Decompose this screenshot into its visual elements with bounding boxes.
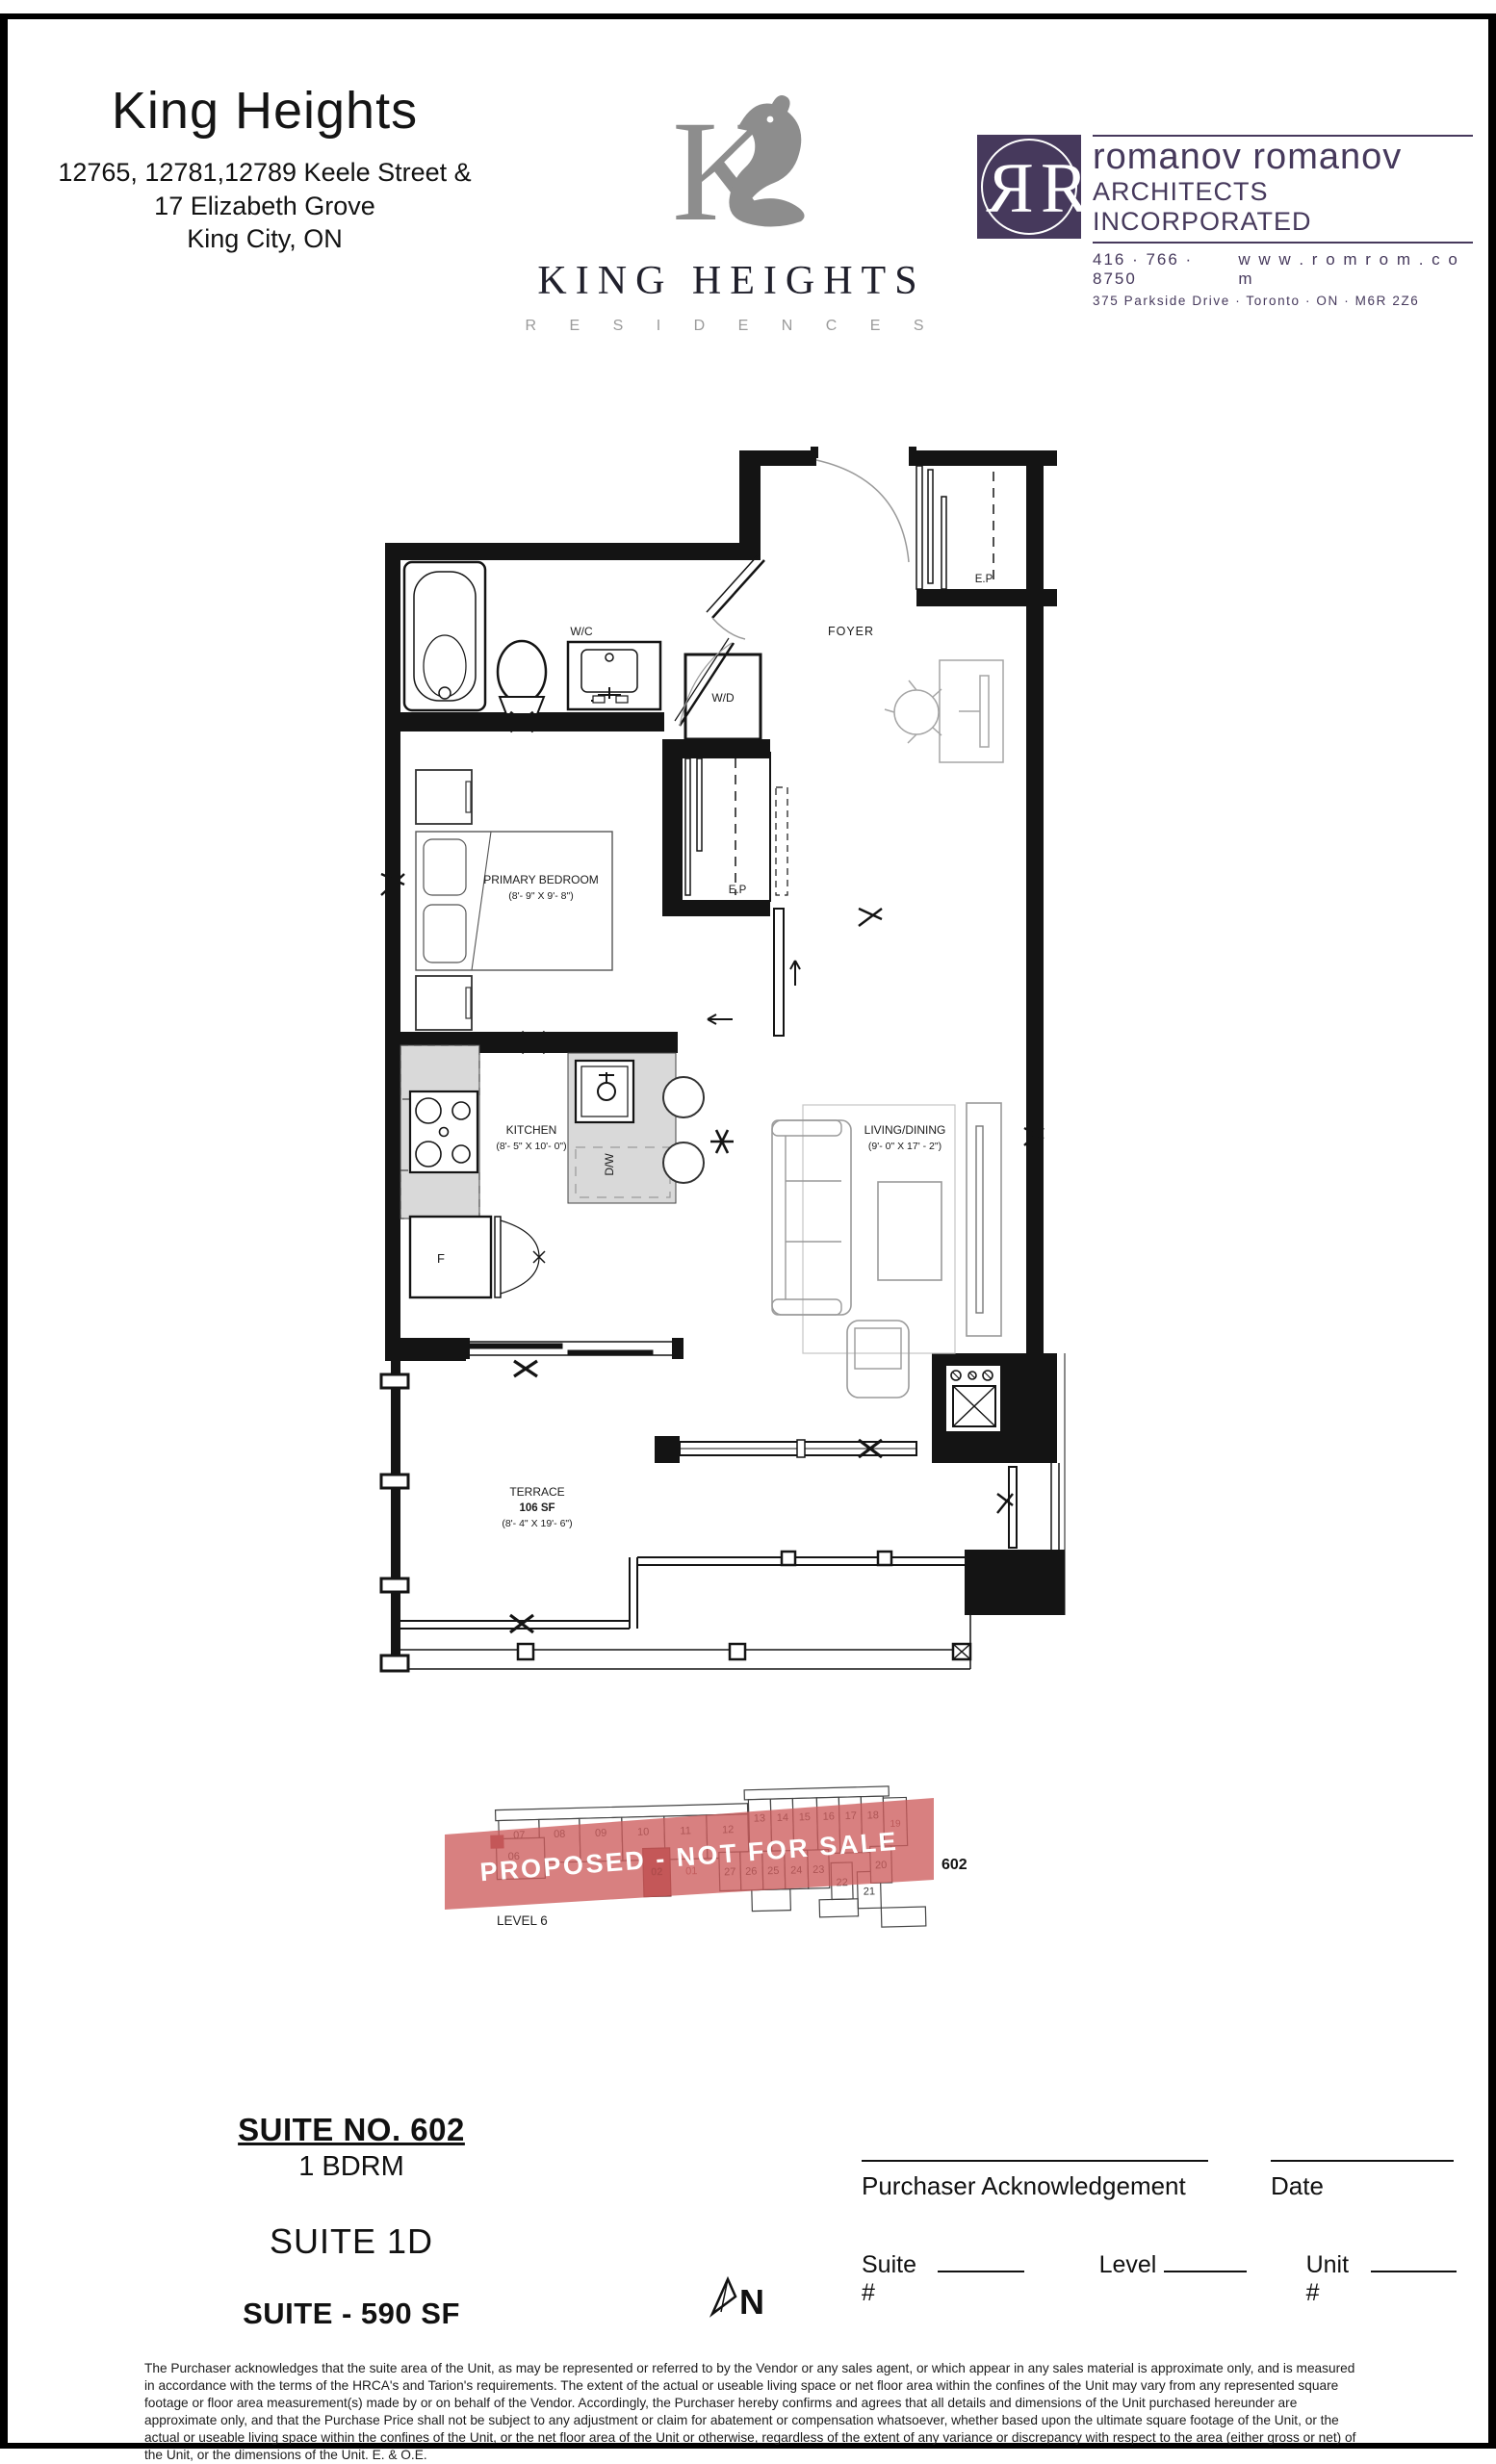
- terrace-railing: [381, 1374, 970, 1671]
- suite-number: SUITE NO. 602: [168, 2112, 534, 2148]
- desk-icon: [940, 660, 1003, 762]
- unit-field-label: Unit #: [1306, 2251, 1367, 2307]
- svg-text:R: R: [986, 149, 1034, 228]
- architect-tagline: ARCHITECTS INCORPORATED: [1093, 177, 1473, 244]
- suite-field-line: [938, 2255, 1023, 2272]
- architect-block: R R romanov romanov ARCHITECTS INCORPORA…: [977, 135, 1473, 308]
- rr-monogram-icon: R R: [977, 135, 1081, 239]
- architect-phone: 416 · 766 · 8750: [1093, 250, 1238, 289]
- level-field-line: [1164, 2255, 1246, 2272]
- north-arrow-icon: N: [699, 2271, 791, 2322]
- bedroom-dims: (8'- 9" X 9'- 8"): [508, 890, 573, 902]
- page-border-left: [0, 13, 8, 2447]
- foyer-label: FOYER: [828, 625, 874, 638]
- keyplan-suite-number: 602: [941, 1857, 967, 1873]
- architect-website: w w w . r o m r o m . c o m: [1238, 250, 1473, 289]
- architect-name: romanov romanov: [1093, 135, 1473, 177]
- address-line: King City, ON: [39, 222, 491, 256]
- suite-field-label: Suite #: [862, 2251, 934, 2307]
- office-chair-icon: [885, 680, 941, 743]
- living-label: LIVING/DINING: [864, 1123, 946, 1137]
- architect-contact: 416 · 766 · 8750 w w w . r o m r o m . c…: [1093, 250, 1473, 289]
- page-border-right: [1488, 13, 1496, 2447]
- suite-type: 1 BDRM: [168, 2151, 534, 2183]
- dw-label: D/W: [603, 1153, 616, 1176]
- living-dims: (9'- 0" X 17' - 2"): [868, 1141, 941, 1152]
- closet-ep-label: E.P: [729, 885, 747, 896]
- suite-model: SUITE 1D: [168, 2221, 534, 2262]
- signature-lines: [862, 2160, 1457, 2164]
- unit-field-line: [1371, 2255, 1457, 2272]
- ep-label: E.P: [975, 574, 993, 585]
- address-line: 17 Elizabeth Grove: [39, 190, 491, 223]
- bathtub-icon: [404, 562, 485, 710]
- wd-label: W/D: [711, 691, 735, 705]
- suite-fields: Suite # Level Unit #: [862, 2251, 1457, 2307]
- kitchen-dims: (8'- 5" X 10'- 0"): [496, 1141, 566, 1152]
- page-border-top: [0, 13, 1496, 19]
- floorplan-sheet: { "header": { "project": { "title": "Kin…: [0, 0, 1496, 2464]
- terrace-dims: (8'- 4" X 19'- 6"): [502, 1518, 572, 1529]
- signature-labels: Purchaser Acknowledgement Date: [862, 2171, 1457, 2201]
- project-title-text: King Heights: [39, 81, 491, 141]
- address-line: 12765, 12781,12789 Keele Street &: [39, 156, 491, 190]
- terrace-area: 106 SF: [519, 1502, 555, 1514]
- date-signature-line: [1271, 2160, 1454, 2164]
- keyplan-level-label: LEVEL 6: [497, 1913, 548, 1928]
- kitchen-label: KITCHEN: [506, 1123, 557, 1137]
- project-address: 12765, 12781,12789 Keele Street & 17 Eli…: [39, 156, 491, 256]
- svg-text:21: 21: [864, 1886, 876, 1897]
- acknowledgement-block: Purchaser Acknowledgement Date Suite # L…: [862, 2160, 1457, 2307]
- toilet-icon: [498, 641, 546, 714]
- kitchen-fixtures: [400, 1045, 704, 1297]
- architect-address: 375 Parkside Drive · Toronto · ON · M6R …: [1093, 294, 1473, 308]
- date-label: Date: [1271, 2171, 1324, 2201]
- brand-wordmark: KING HEIGHTS: [491, 258, 972, 304]
- level-field-label: Level: [1099, 2251, 1157, 2279]
- suite-area: SUITE - 590 SF: [168, 2297, 534, 2331]
- wc-label: W/C: [570, 625, 593, 638]
- floorplan-drawing: W/C W/D FOYER E.P E.P PRIMARY BEDROOM (8…: [377, 435, 1090, 1696]
- vanity-sink-icon: [568, 642, 660, 709]
- legal-disclaimer: The Purchaser acknowledges that the suit…: [144, 2360, 1363, 2464]
- project-block: King Heights 12765, 12781,12789 Keele St…: [39, 133, 491, 256]
- terrace-label: TERRACE: [509, 1485, 564, 1499]
- appliance-niche-icon: [945, 1365, 1001, 1432]
- brand-logo: K KING HEIGHTS R E S I D E N C E S: [491, 85, 972, 335]
- suite-info-block: SUITE NO. 602 1 BDRM SUITE 1D SUITE - 59…: [168, 2112, 534, 2331]
- svg-text:R: R: [1041, 149, 1081, 228]
- architect-text: romanov romanov ARCHITECTS INCORPORATED …: [1093, 135, 1473, 308]
- fridge-label: F: [437, 1251, 445, 1266]
- brand-subword: R E S I D E N C E S: [491, 318, 972, 335]
- bedroom-label: PRIMARY BEDROOM: [483, 873, 599, 886]
- level-keyplan: 07 08 09 10 11 12 13 14 15 16 17 18 19 0…: [414, 1774, 992, 1962]
- purchaser-label: Purchaser Acknowledgement: [862, 2171, 1271, 2201]
- horse-k-monogram-icon: K: [616, 85, 847, 244]
- north-label: N: [739, 2282, 764, 2322]
- purchaser-signature-line: [862, 2160, 1208, 2164]
